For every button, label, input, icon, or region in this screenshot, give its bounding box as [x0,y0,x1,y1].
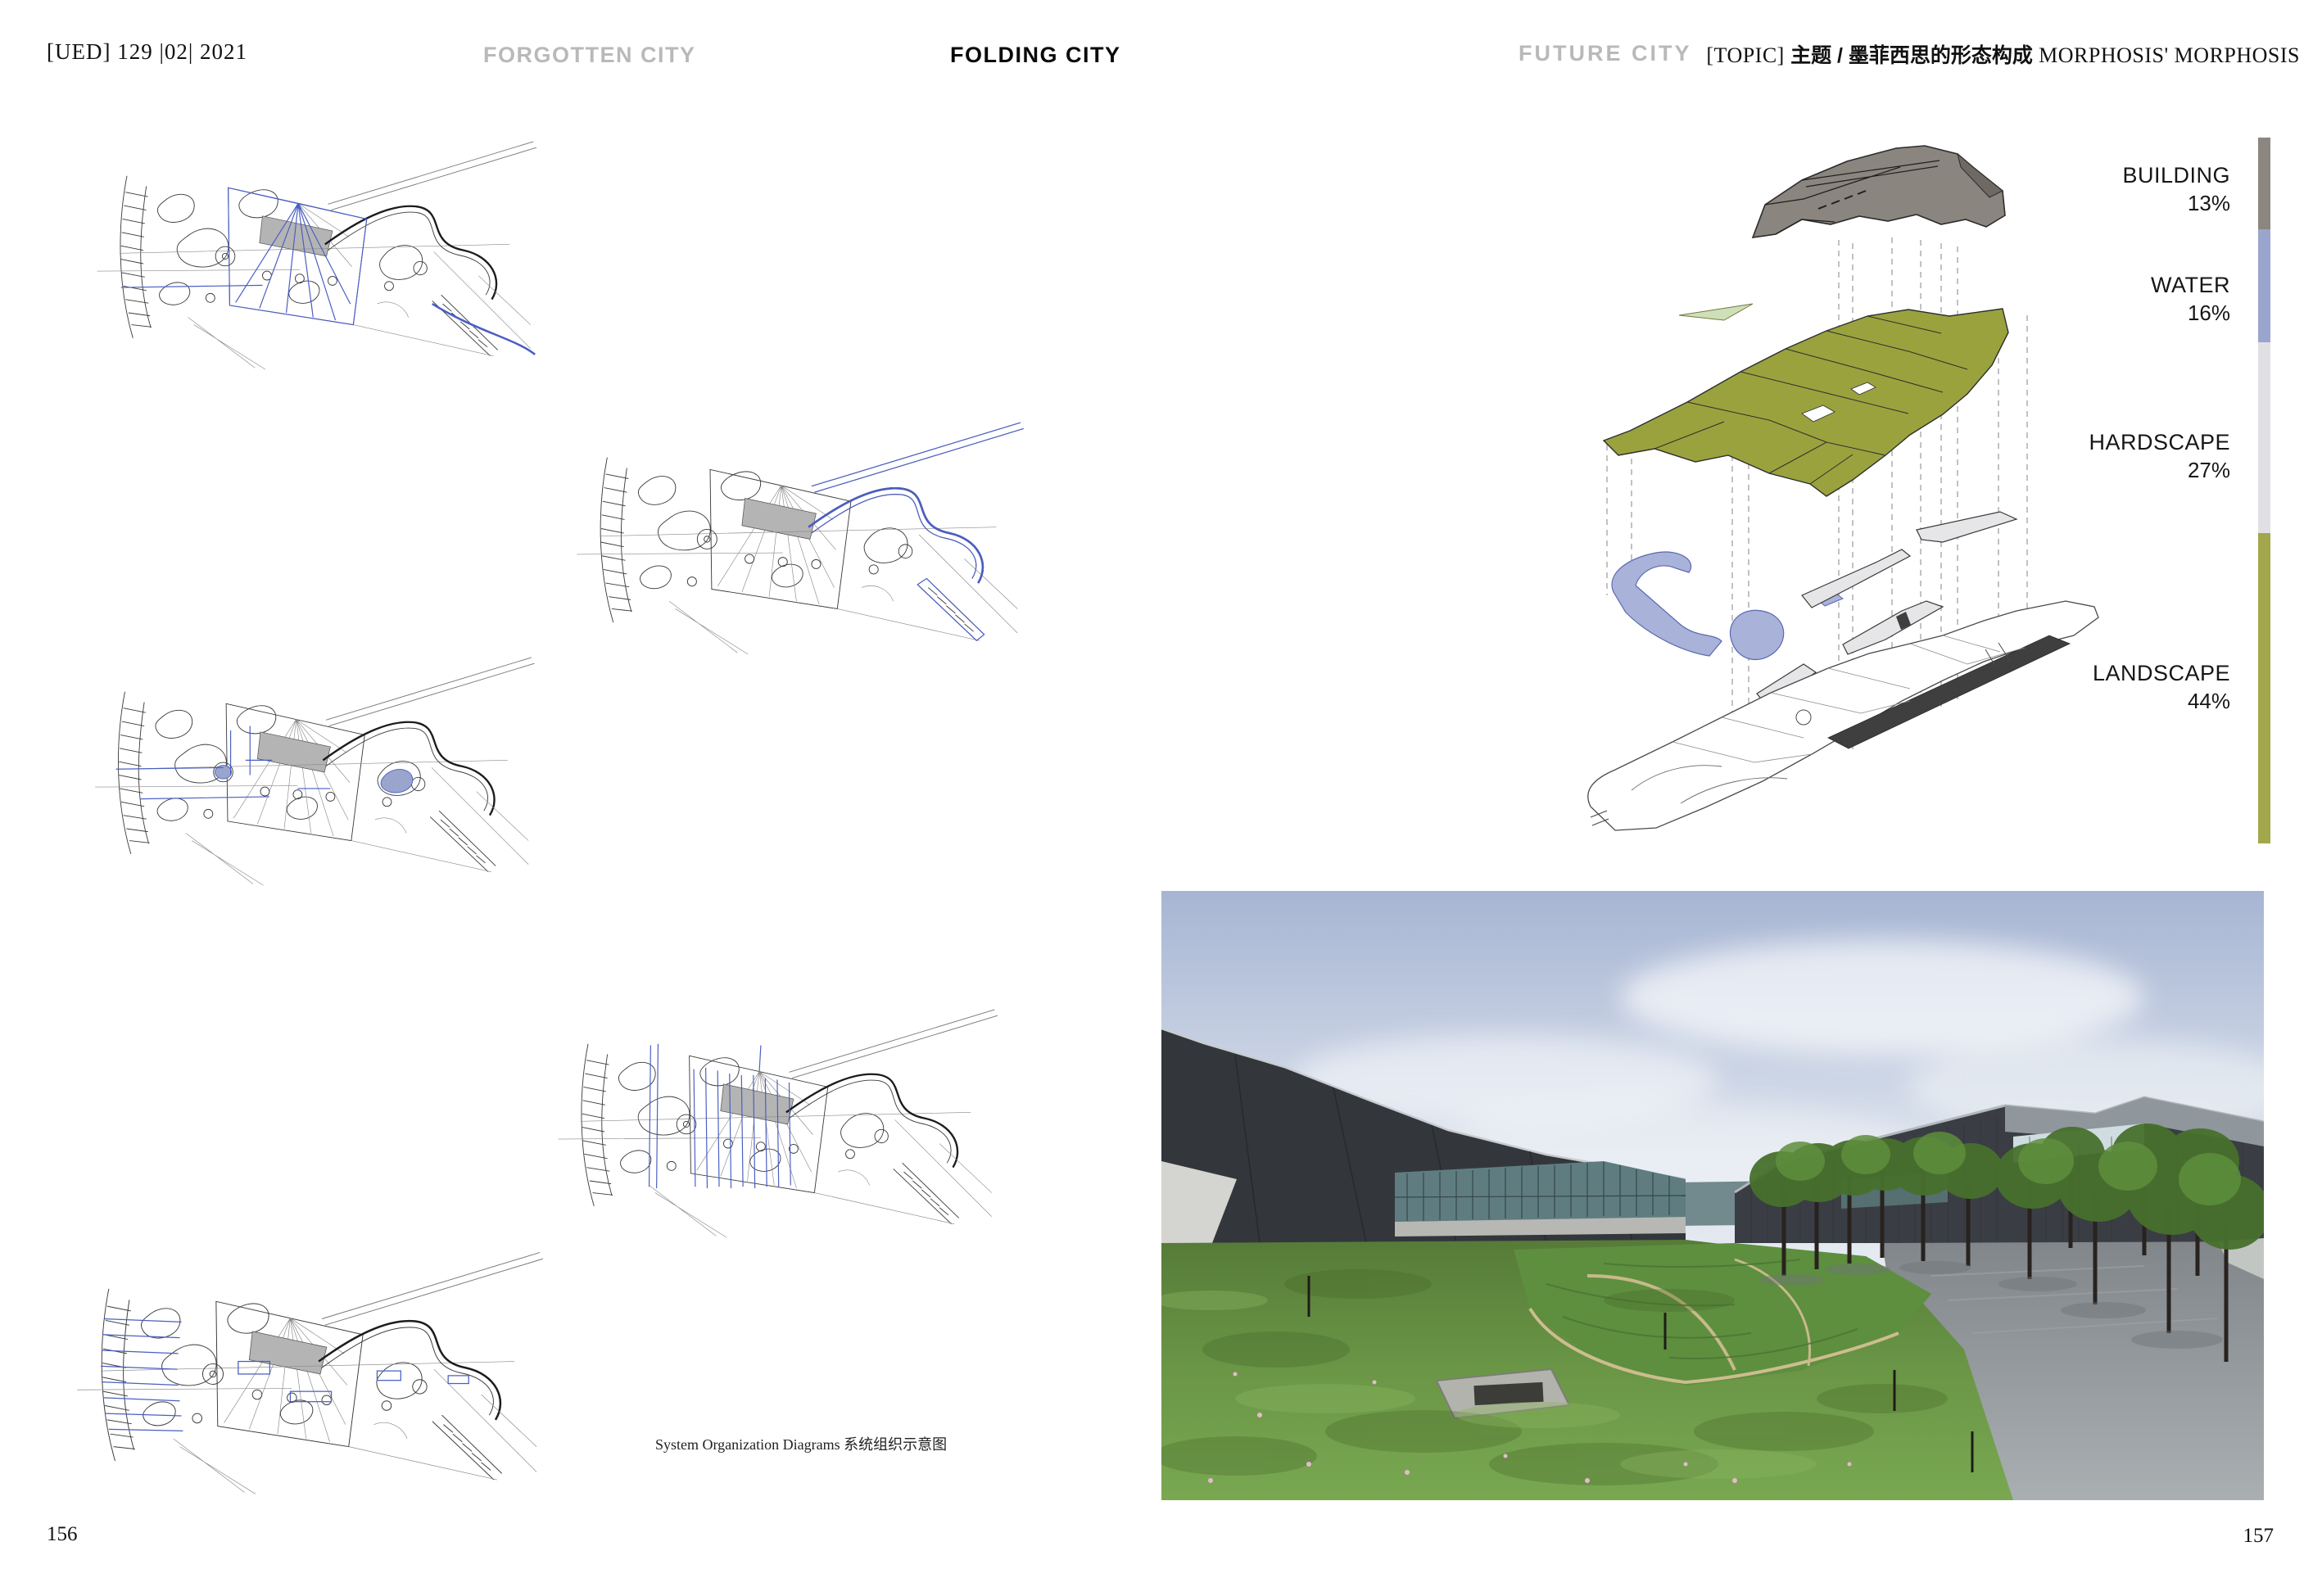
page-number-left: 156 [47,1523,78,1546]
topic-english: MORPHOSIS' MORPHOSIS [2039,43,2300,67]
system-diagram-2 [520,414,1061,663]
legend-label: WATER [1968,272,2230,300]
bar-segment-building [2258,138,2270,229]
legend-percent: 13% [1968,190,2230,217]
diagram-caption-cn: 系统组织示意图 [844,1436,947,1453]
diagram-caption-en: System Organization Diagrams [655,1436,840,1453]
nav-folding-city: FOLDING CITY [950,43,1121,68]
system-diagram-5 [49,1243,550,1503]
nav-future-city: FUTURE CITY [1519,41,1692,66]
legend-item-landscape: LANDSCAPE 44% [1968,660,2230,714]
topic-chinese: 主题 / 墨菲西思的形态构成 [1790,44,2033,67]
bar-segment-hardscape [2258,342,2270,533]
topic-line: [TOPIC] 主题 / 墨菲西思的形态构成 MORPHOSIS' MORPHO… [1706,39,2300,69]
axon-building-layer [1753,146,2005,237]
magazine-spread: [UED] 129 |02| 2021 FORGOTTEN CITY FOLDI… [0,0,2322,1596]
nav-forgotten-city: FORGOTTEN CITY [483,43,696,68]
axon-greenroof-layer [1604,304,2008,496]
page-number-right: 157 [2243,1525,2274,1548]
system-diagram-3 [70,649,541,894]
system-diagram-4 [523,1001,1014,1246]
legend-item-water: WATER 16% [1968,272,2230,326]
legend-label: BUILDING [1968,162,2230,190]
legend-percent: 27% [1968,457,2230,484]
legend-percent: 16% [1968,300,2230,327]
system-diagram-1 [74,133,541,378]
issue-info: [UED] 129 |02| 2021 [47,39,247,65]
diagram-caption: System Organization Diagrams 系统组织示意图 [655,1433,947,1454]
legend-item-hardscape: HARDSCAPE 27% [1968,429,2230,483]
percentage-stacked-bar [2258,138,2270,843]
topic-prefix: [TOPIC] [1706,43,1784,67]
legend-percent: 44% [1968,688,2230,715]
bar-segment-landscape [2258,533,2270,843]
legend-label: HARDSCAPE [1968,429,2230,457]
bar-segment-water [2258,229,2270,342]
legend-item-building: BUILDING 13% [1968,162,2230,216]
building-photo [1161,891,2264,1500]
legend-label: LANDSCAPE [1968,660,2230,688]
axon-water-layer [1612,552,1843,659]
